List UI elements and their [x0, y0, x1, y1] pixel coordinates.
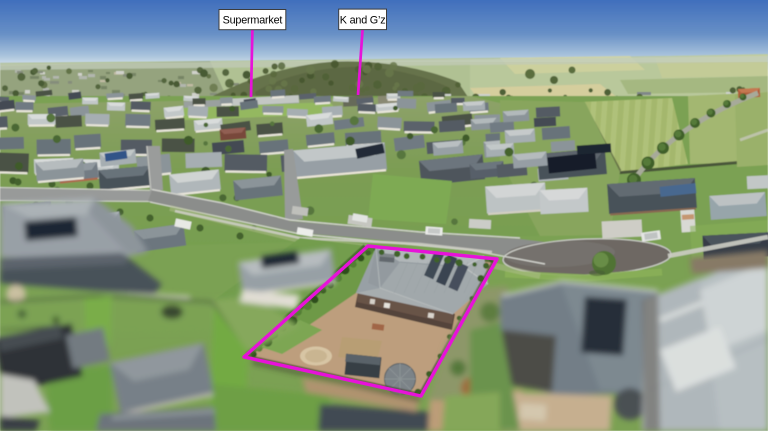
svg-text:K and G’z: K and G’z [340, 15, 386, 27]
svg-text:Supermarket: Supermarket [223, 15, 283, 27]
